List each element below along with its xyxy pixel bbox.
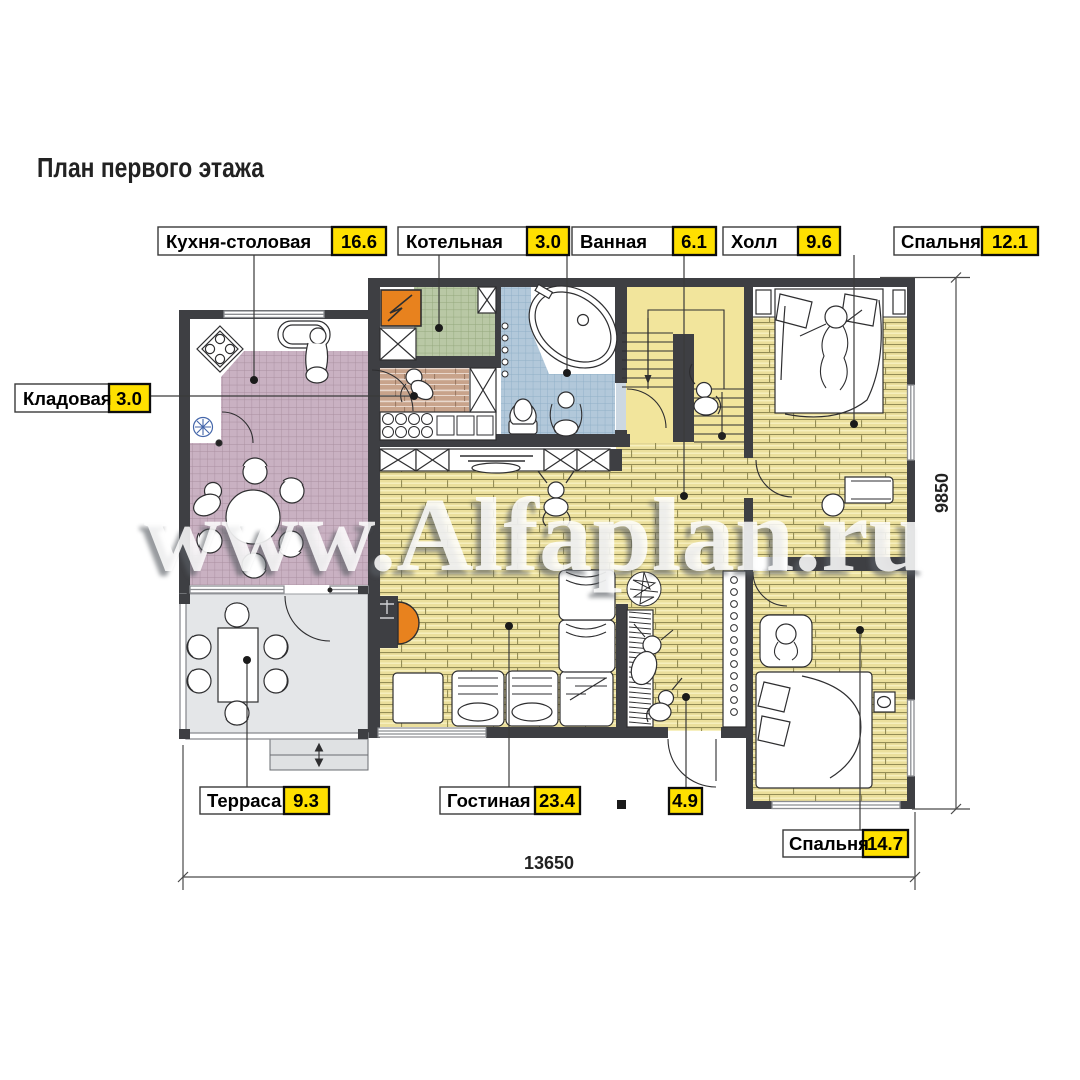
svg-text:Терраса: Терраса xyxy=(207,790,282,811)
svg-text:12.1: 12.1 xyxy=(992,231,1028,252)
svg-text:Кухня-столовая: Кухня-столовая xyxy=(166,231,311,252)
svg-text:Спальня: Спальня xyxy=(789,833,869,854)
svg-text:www.Alfaplan.ru: www.Alfaplan.ru xyxy=(144,476,928,593)
svg-text:Холл: Холл xyxy=(731,231,777,252)
svg-text:3.0: 3.0 xyxy=(116,388,142,409)
svg-text:3.0: 3.0 xyxy=(535,231,561,252)
svg-text:План первого этажа: План первого этажа xyxy=(37,152,264,183)
svg-text:9.6: 9.6 xyxy=(806,231,832,252)
svg-text:6.1: 6.1 xyxy=(681,231,707,252)
svg-text:16.6: 16.6 xyxy=(341,231,377,252)
svg-text:23.4: 23.4 xyxy=(539,790,576,811)
svg-text:Гостиная: Гостиная xyxy=(447,790,531,811)
svg-text:9.3: 9.3 xyxy=(293,790,319,811)
svg-text:Ванная: Ванная xyxy=(580,231,647,252)
svg-text:Спальня: Спальня xyxy=(901,231,981,252)
svg-text:13650: 13650 xyxy=(524,853,574,873)
svg-text:9850: 9850 xyxy=(932,473,952,513)
svg-text:Кладовая: Кладовая xyxy=(23,388,112,409)
svg-text:Котельная: Котельная xyxy=(406,231,503,252)
svg-text:4.9: 4.9 xyxy=(672,790,698,811)
svg-text:14.7: 14.7 xyxy=(867,833,903,854)
